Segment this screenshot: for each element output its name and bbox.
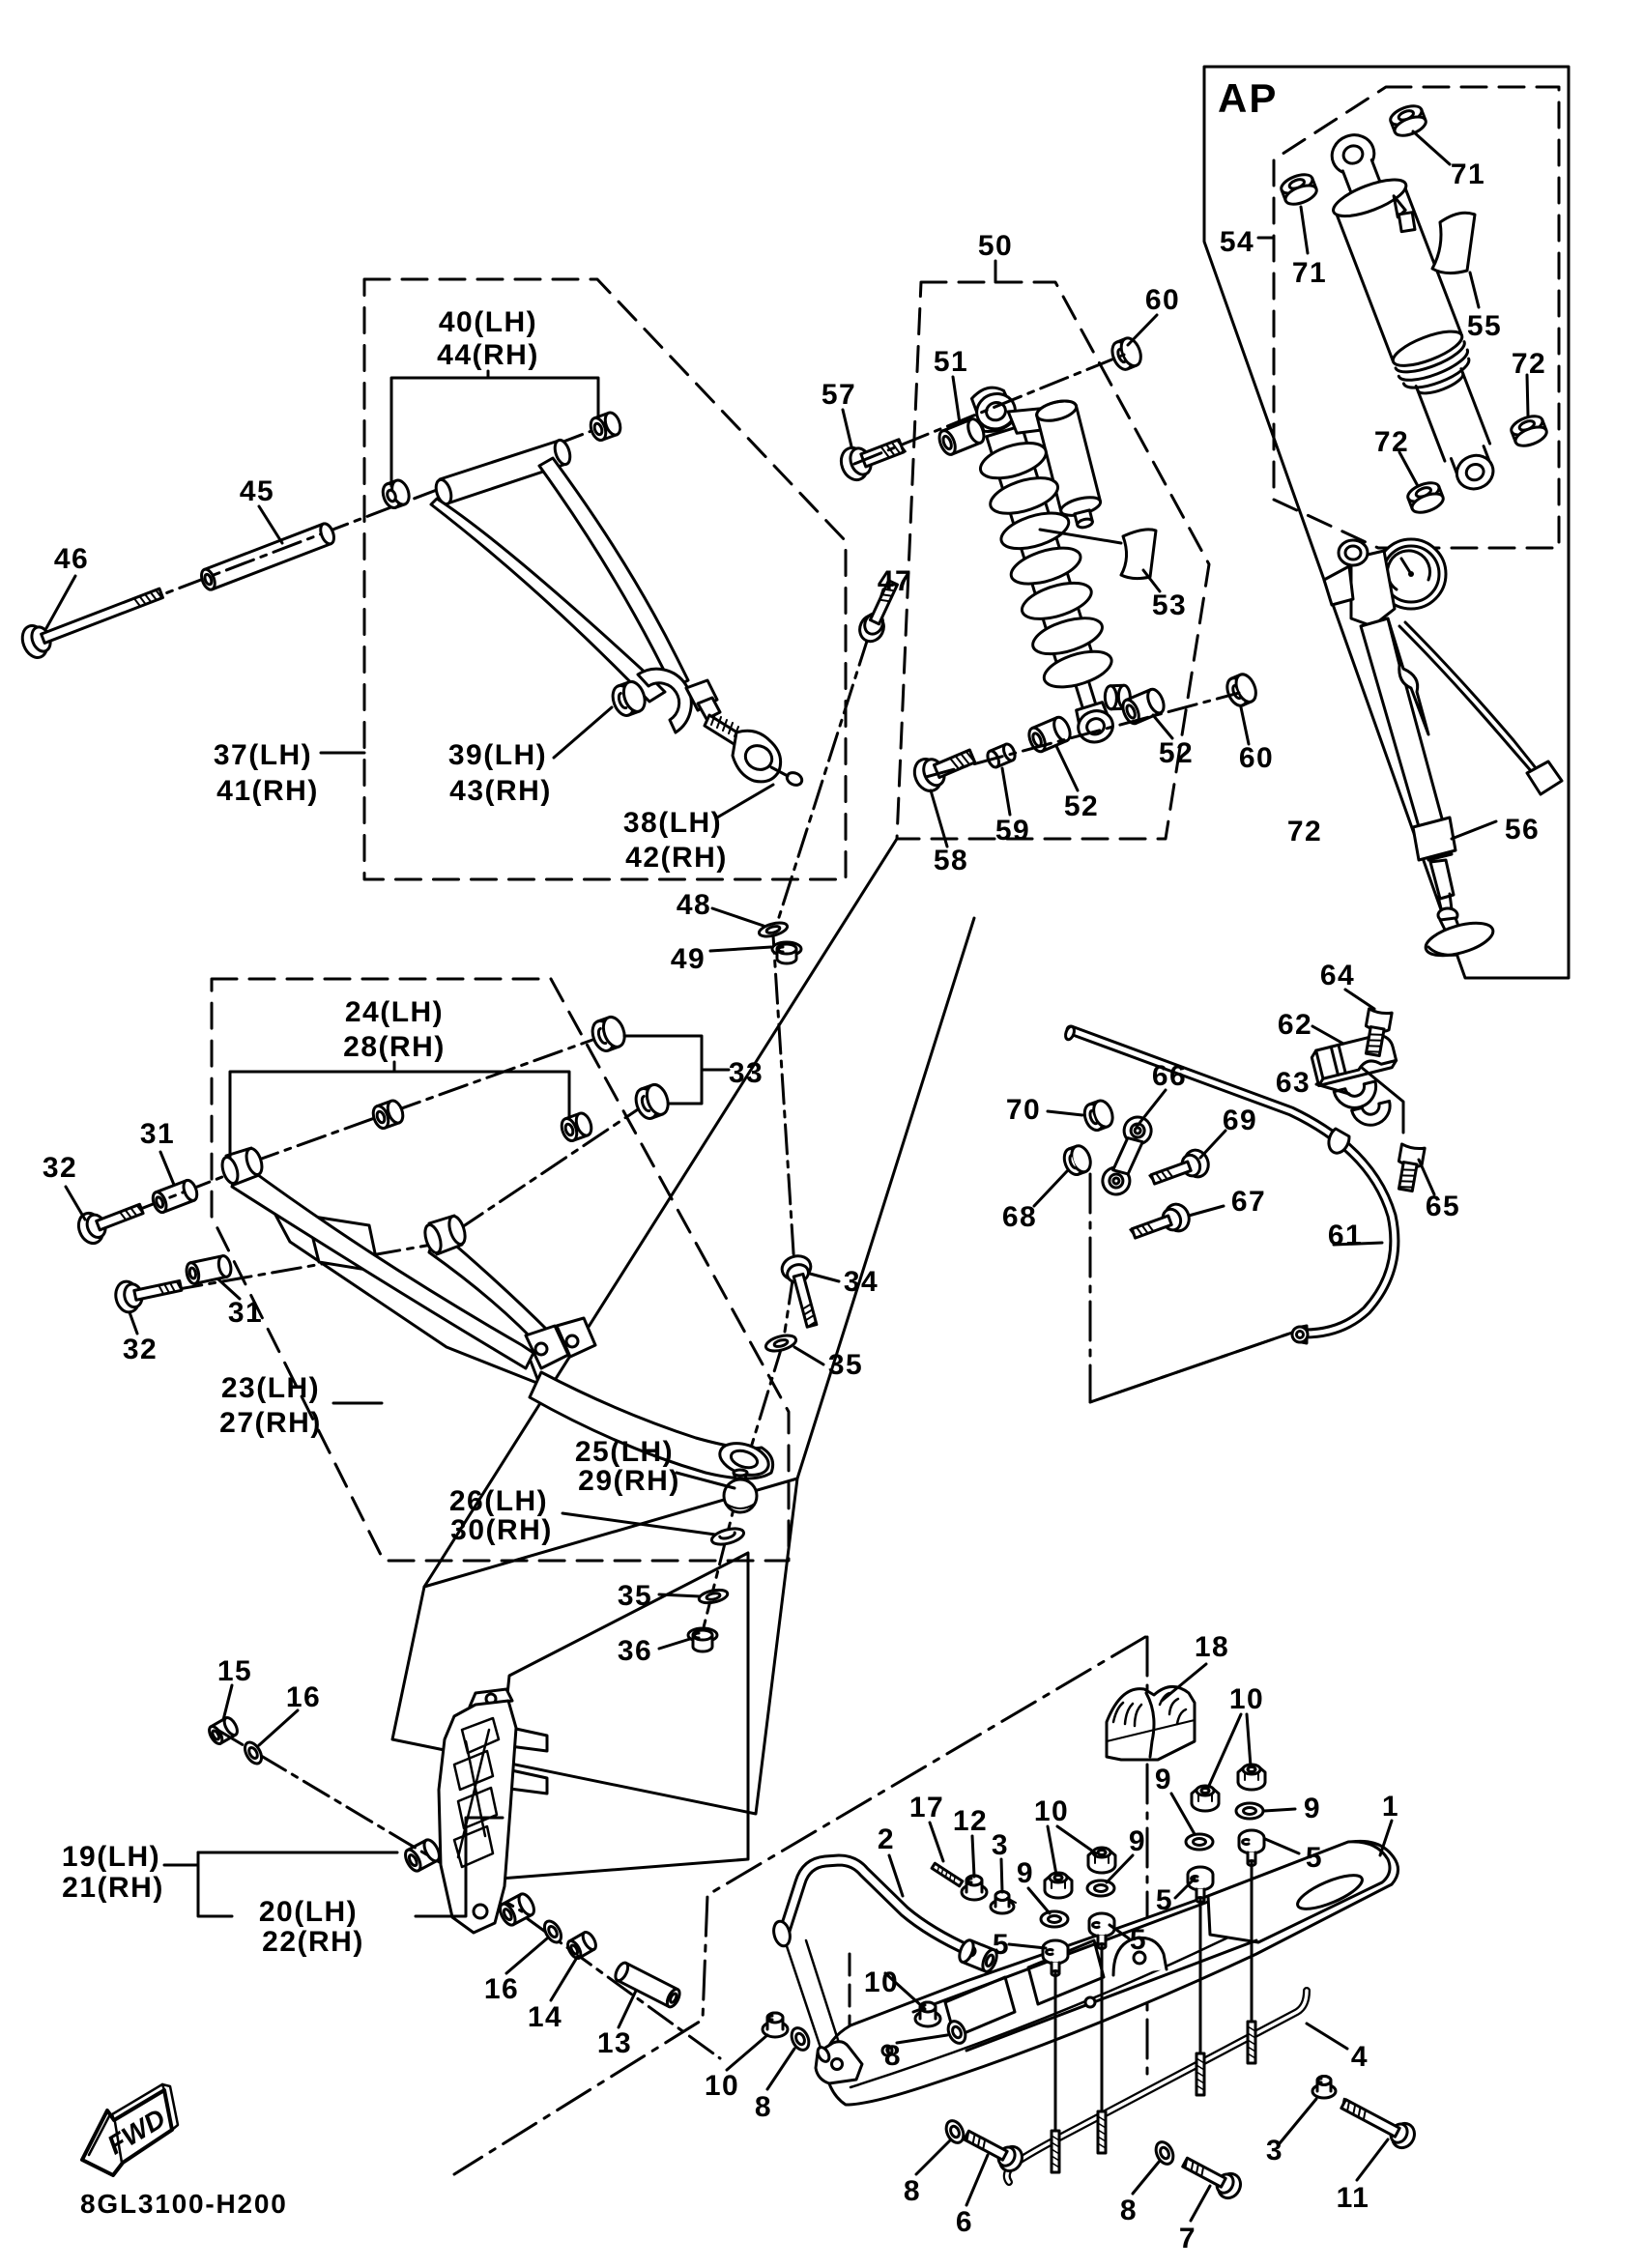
svg-text:2: 2 xyxy=(878,1823,895,1855)
svg-text:60: 60 xyxy=(1145,284,1180,316)
svg-text:43(RH): 43(RH) xyxy=(449,775,552,807)
svg-text:31: 31 xyxy=(140,1118,175,1150)
svg-text:26(LH): 26(LH) xyxy=(449,1485,548,1517)
svg-text:5: 5 xyxy=(993,1929,1010,1961)
svg-text:10: 10 xyxy=(705,2070,739,2102)
svg-text:8GL3100-H200: 8GL3100-H200 xyxy=(80,2189,288,2219)
svg-text:56: 56 xyxy=(1505,814,1540,846)
svg-text:33: 33 xyxy=(729,1057,764,1089)
svg-text:53: 53 xyxy=(1152,589,1187,621)
svg-text:23(LH): 23(LH) xyxy=(221,1372,320,1404)
svg-text:10: 10 xyxy=(864,1967,899,1998)
svg-text:5: 5 xyxy=(1130,1924,1147,1956)
svg-text:68: 68 xyxy=(1002,1201,1037,1233)
svg-text:24(LH): 24(LH) xyxy=(345,996,444,1028)
svg-text:35: 35 xyxy=(828,1349,863,1381)
svg-text:36: 36 xyxy=(618,1635,652,1667)
svg-text:13: 13 xyxy=(597,2027,632,2059)
svg-text:65: 65 xyxy=(1426,1191,1460,1222)
svg-text:17: 17 xyxy=(909,1792,944,1823)
svg-text:9: 9 xyxy=(1155,1764,1172,1795)
svg-text:71: 71 xyxy=(1292,257,1327,289)
svg-text:62: 62 xyxy=(1278,1009,1312,1041)
svg-text:11: 11 xyxy=(1337,2182,1370,2214)
svg-text:49: 49 xyxy=(671,943,706,975)
svg-text:38(LH): 38(LH) xyxy=(623,807,722,839)
svg-text:25(LH): 25(LH) xyxy=(575,1436,674,1468)
svg-text:16: 16 xyxy=(484,1973,519,2005)
svg-text:19(LH): 19(LH) xyxy=(62,1841,160,1873)
svg-text:9: 9 xyxy=(1304,1793,1321,1824)
svg-text:61: 61 xyxy=(1328,1220,1363,1251)
svg-text:40(LH): 40(LH) xyxy=(439,306,537,338)
svg-text:AP: AP xyxy=(1218,75,1278,121)
svg-text:54: 54 xyxy=(1220,226,1254,258)
svg-text:7: 7 xyxy=(1179,2223,1196,2254)
svg-text:52: 52 xyxy=(1159,737,1194,769)
svg-text:18: 18 xyxy=(1195,1631,1229,1663)
svg-text:12: 12 xyxy=(953,1805,988,1837)
svg-text:32: 32 xyxy=(43,1152,77,1184)
svg-text:45: 45 xyxy=(240,475,274,507)
svg-text:64: 64 xyxy=(1320,960,1355,991)
svg-text:41(RH): 41(RH) xyxy=(216,775,319,807)
svg-text:57: 57 xyxy=(821,379,856,411)
svg-text:60: 60 xyxy=(1239,742,1274,774)
svg-text:63: 63 xyxy=(1276,1067,1311,1099)
svg-text:6: 6 xyxy=(956,2206,973,2238)
svg-text:8: 8 xyxy=(755,2091,772,2123)
svg-text:3: 3 xyxy=(1266,2135,1283,2167)
svg-text:10: 10 xyxy=(1034,1795,1069,1827)
svg-text:9: 9 xyxy=(1129,1825,1146,1857)
svg-text:59: 59 xyxy=(995,815,1030,847)
svg-text:67: 67 xyxy=(1231,1186,1266,1218)
svg-text:70: 70 xyxy=(1006,1094,1041,1126)
svg-text:47: 47 xyxy=(878,565,912,597)
svg-text:69: 69 xyxy=(1223,1105,1257,1136)
svg-text:55: 55 xyxy=(1467,310,1502,342)
svg-text:35: 35 xyxy=(618,1580,652,1612)
svg-text:32: 32 xyxy=(123,1334,158,1365)
svg-text:20(LH): 20(LH) xyxy=(259,1896,358,1928)
svg-text:72: 72 xyxy=(1374,426,1409,458)
svg-text:34: 34 xyxy=(844,1266,879,1298)
svg-text:8: 8 xyxy=(884,2040,902,2072)
svg-text:5: 5 xyxy=(1156,1884,1173,1916)
svg-text:58: 58 xyxy=(934,845,968,876)
svg-text:3: 3 xyxy=(992,1829,1009,1861)
svg-text:39(LH): 39(LH) xyxy=(448,739,547,771)
svg-text:5: 5 xyxy=(1306,1842,1323,1874)
svg-text:72: 72 xyxy=(1512,348,1546,380)
svg-text:16: 16 xyxy=(286,1681,321,1713)
svg-text:48: 48 xyxy=(677,889,711,921)
svg-text:71: 71 xyxy=(1451,158,1485,190)
svg-text:9: 9 xyxy=(1017,1857,1034,1889)
svg-text:27(RH): 27(RH) xyxy=(219,1407,322,1439)
svg-text:66: 66 xyxy=(1152,1060,1187,1092)
svg-text:1: 1 xyxy=(1382,1791,1399,1823)
svg-text:8: 8 xyxy=(1120,2195,1138,2226)
svg-text:30(RH): 30(RH) xyxy=(450,1514,553,1546)
svg-text:46: 46 xyxy=(54,543,89,575)
svg-text:51: 51 xyxy=(934,346,968,378)
svg-text:28(RH): 28(RH) xyxy=(343,1031,446,1063)
svg-text:52: 52 xyxy=(1064,790,1099,822)
svg-text:15: 15 xyxy=(217,1655,252,1687)
svg-text:29(RH): 29(RH) xyxy=(578,1465,680,1497)
svg-text:4: 4 xyxy=(1351,2041,1369,2073)
svg-text:21(RH): 21(RH) xyxy=(62,1872,164,1904)
svg-text:31: 31 xyxy=(228,1297,263,1329)
svg-text:72: 72 xyxy=(1287,816,1322,847)
svg-text:8: 8 xyxy=(904,2175,921,2207)
svg-text:50: 50 xyxy=(978,230,1013,262)
svg-text:10: 10 xyxy=(1229,1683,1264,1715)
svg-text:14: 14 xyxy=(528,2001,562,2033)
svg-text:37(LH): 37(LH) xyxy=(214,739,312,771)
svg-text:42(RH): 42(RH) xyxy=(625,842,728,874)
svg-text:22(RH): 22(RH) xyxy=(262,1926,364,1958)
svg-text:44(RH): 44(RH) xyxy=(437,339,539,371)
